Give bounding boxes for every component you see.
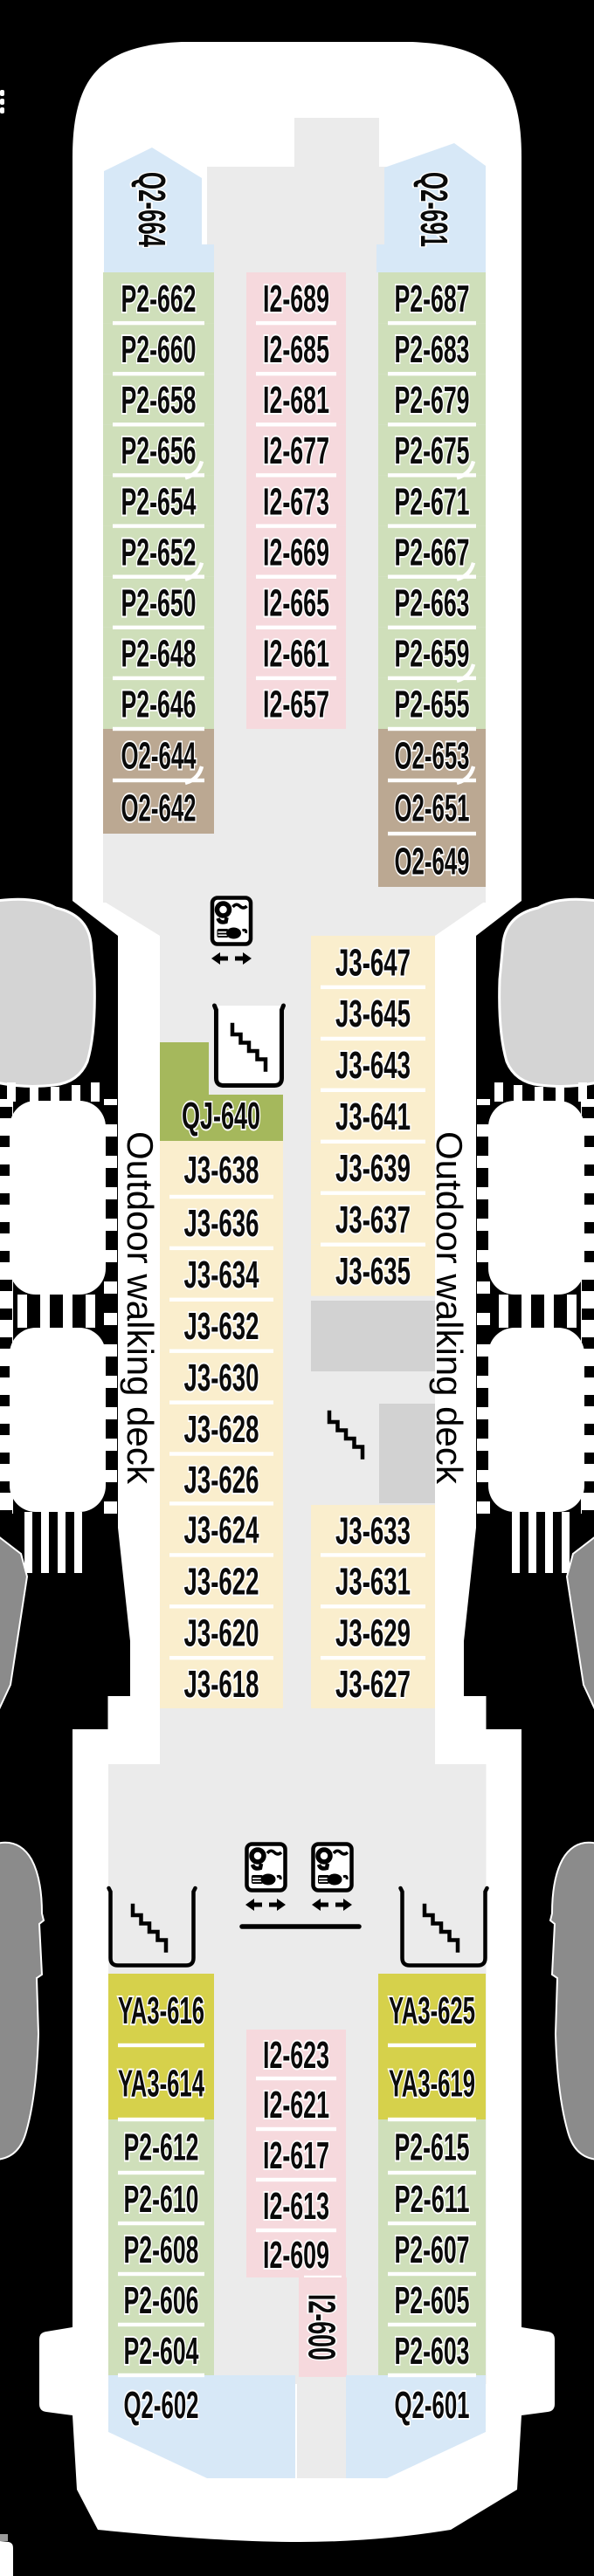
svg-text:J3-634: J3-634	[184, 1254, 259, 1296]
svg-text:Outdoor walking deck: Outdoor walking deck	[120, 1131, 161, 1485]
svg-text:P2-656: P2-656	[121, 429, 197, 472]
svg-text:I2-673: I2-673	[263, 480, 329, 523]
svg-text:Q2-691: Q2-691	[412, 172, 455, 247]
svg-text:P2-650: P2-650	[121, 582, 197, 625]
svg-text:I2-657: I2-657	[263, 683, 329, 726]
svg-text:I2-617: I2-617	[263, 2134, 329, 2177]
svg-text:J3-627: J3-627	[335, 1663, 411, 1706]
svg-text:P2-667: P2-667	[395, 531, 470, 574]
svg-text:P2-660: P2-660	[121, 328, 197, 371]
svg-text:Q2-602: Q2-602	[124, 2384, 199, 2427]
svg-text:I2-689: I2-689	[263, 278, 329, 320]
svg-text:P2-604: P2-604	[124, 2330, 199, 2373]
svg-text:J3-628: J3-628	[184, 1408, 259, 1451]
svg-text:Outdoor walking deck: Outdoor walking deck	[429, 1131, 470, 1485]
svg-text:P2-603: P2-603	[395, 2330, 470, 2373]
svg-text:I2-685: I2-685	[263, 328, 329, 371]
svg-text:J3-647: J3-647	[335, 941, 411, 984]
svg-text:O2-653: O2-653	[395, 734, 470, 777]
svg-text:YA3-616: YA3-616	[118, 1989, 204, 2032]
svg-text:J3-622: J3-622	[184, 1561, 259, 1604]
svg-text:P2-683: P2-683	[395, 328, 470, 371]
svg-text:J3-633: J3-633	[335, 1510, 411, 1553]
svg-text:P2-612: P2-612	[124, 2126, 199, 2168]
svg-text:J3-643: J3-643	[335, 1044, 411, 1087]
svg-text:I2-609: I2-609	[263, 2234, 329, 2277]
svg-text:I2-621: I2-621	[263, 2084, 329, 2126]
svg-text:YA3-614: YA3-614	[118, 2062, 204, 2105]
svg-text:J3-639: J3-639	[335, 1147, 411, 1190]
svg-text:I2-661: I2-661	[263, 633, 329, 676]
svg-text:P2-610: P2-610	[124, 2178, 199, 2221]
svg-text:P2-655: P2-655	[395, 683, 470, 726]
svg-text:O2-649: O2-649	[395, 840, 470, 883]
svg-text:P2-659: P2-659	[395, 633, 470, 676]
svg-text:J3-620: J3-620	[184, 1612, 259, 1655]
svg-text:J3-618: J3-618	[184, 1663, 259, 1706]
svg-text:P2-608: P2-608	[124, 2229, 199, 2271]
svg-text:P2-615: P2-615	[395, 2126, 470, 2168]
svg-text:J3-635: J3-635	[335, 1250, 411, 1293]
svg-text:P2-648: P2-648	[121, 633, 197, 676]
svg-text:Q2-664: Q2-664	[130, 172, 173, 247]
svg-text:P2-662: P2-662	[121, 278, 197, 320]
svg-text:J3-629: J3-629	[335, 1612, 411, 1655]
svg-text:J3-641: J3-641	[335, 1096, 411, 1138]
svg-text:I2-623: I2-623	[263, 2034, 329, 2077]
svg-text:P2-605: P2-605	[395, 2279, 470, 2322]
svg-text:O2-644: O2-644	[121, 734, 197, 777]
svg-text:J3-630: J3-630	[184, 1357, 259, 1399]
svg-text:J3-626: J3-626	[184, 1459, 259, 1501]
svg-text:J3-631: J3-631	[335, 1561, 411, 1604]
svg-text:P2-606: P2-606	[124, 2279, 199, 2322]
svg-text:P2-675: P2-675	[395, 429, 470, 472]
svg-text:O2-642: O2-642	[121, 787, 197, 829]
svg-text:P2-658: P2-658	[121, 379, 197, 422]
svg-text:P2-671: P2-671	[395, 480, 470, 523]
svg-text:I2-681: I2-681	[263, 379, 329, 422]
svg-text:YA3-625: YA3-625	[389, 1989, 475, 2032]
svg-text:I2-613: I2-613	[263, 2185, 329, 2228]
svg-text:J3-638: J3-638	[184, 1149, 259, 1192]
svg-text:P2-679: P2-679	[395, 379, 470, 422]
svg-text:P2-654: P2-654	[121, 480, 197, 523]
svg-text:I2-665: I2-665	[263, 582, 329, 625]
svg-text:QJ-640: QJ-640	[182, 1095, 260, 1137]
svg-text:Q2-601: Q2-601	[395, 2384, 470, 2427]
svg-text:J3-624: J3-624	[184, 1509, 259, 1552]
svg-text:J3-645: J3-645	[335, 993, 411, 1035]
svg-text:J3-636: J3-636	[184, 1202, 259, 1245]
svg-text:I2-677: I2-677	[263, 429, 329, 472]
svg-text:P2-646: P2-646	[121, 683, 197, 726]
svg-text:P2-652: P2-652	[121, 531, 197, 574]
svg-text:P2-611: P2-611	[395, 2178, 470, 2221]
svg-text:P2-687: P2-687	[395, 278, 470, 320]
svg-text:O2-651: O2-651	[395, 787, 470, 829]
svg-text:I2-600: I2-600	[300, 2294, 343, 2360]
svg-text:P2-607: P2-607	[395, 2229, 470, 2271]
svg-text:YA3-619: YA3-619	[389, 2062, 475, 2105]
svg-text:P2-663: P2-663	[395, 582, 470, 625]
svg-text:J3-632: J3-632	[184, 1305, 259, 1348]
svg-text:I2-669: I2-669	[263, 531, 329, 574]
svg-text:J3-637: J3-637	[335, 1199, 411, 1241]
